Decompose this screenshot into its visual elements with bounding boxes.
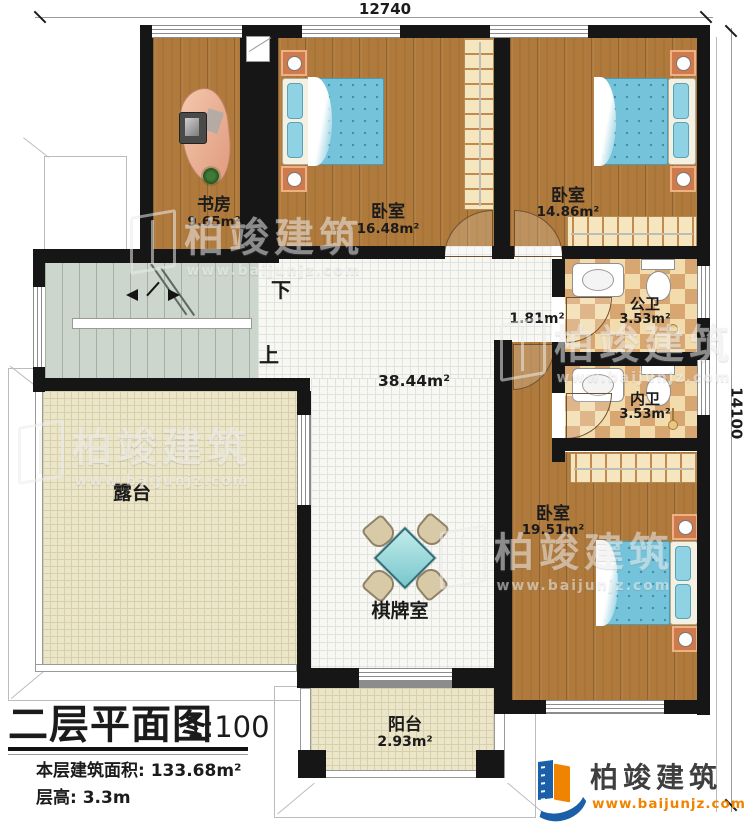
room-area-public-bath: 3.53m²	[612, 313, 678, 327]
wall-bedrooms-bottom	[278, 246, 445, 259]
study-door-leaf	[246, 36, 270, 62]
bedroom2-wardrobe	[567, 216, 697, 250]
bedroom2-window	[490, 25, 588, 38]
room-label-study: 书房	[174, 196, 254, 215]
room-label-public-bath: 公卫	[610, 296, 680, 313]
wall-chess-bottom	[297, 668, 359, 688]
dimension-right-value: 14100	[728, 383, 745, 443]
nightstand	[672, 626, 698, 652]
wall-bedrooms-bottom	[562, 246, 710, 259]
room-area-bedroom1: 16.48m²	[348, 222, 428, 237]
brand-logo: 柏竣建筑 www.baijunjz.com	[524, 755, 744, 817]
study-window	[152, 25, 242, 38]
wall-bedroom3-bottom	[494, 700, 546, 714]
terrace-railing-bottom	[35, 664, 297, 672]
bed-pillow	[287, 122, 303, 158]
balcony-pillar	[476, 750, 504, 778]
room-area-ensuite-bath: 3.53m²	[612, 408, 678, 422]
stairs-arrow-left	[126, 289, 138, 301]
nightstand	[672, 514, 698, 540]
stairs-down-label: 下	[268, 279, 294, 301]
chess-room-floor	[311, 378, 494, 668]
room-label-terrace: 露台	[94, 483, 170, 504]
plan-title: 二层平面图	[8, 703, 188, 747]
wall-chess-terrace	[297, 391, 311, 415]
wall-terrace-top	[33, 378, 310, 391]
bed-pillow	[675, 584, 691, 619]
room-area-study: 9.65m²	[174, 215, 254, 230]
nightstand	[670, 166, 696, 192]
hallway-small-floor	[494, 246, 552, 342]
plant-icon	[203, 168, 219, 184]
bed-pillow	[287, 83, 303, 119]
stairs-center-rail	[72, 318, 252, 329]
wall-door-pillar	[492, 246, 514, 259]
terrace-floor	[43, 391, 297, 664]
ensuite-bath-window	[697, 360, 710, 415]
balcony-pillar	[298, 750, 326, 778]
balcony-railing-bottom	[300, 770, 505, 778]
room-area-bedroom2: 14.86m²	[528, 205, 608, 220]
title-underline	[8, 747, 248, 751]
floor-plan-canvas: 书房 9.65m² 卧室 16.48m² 卧室 14.86m² 公卫 3.53m…	[0, 0, 750, 826]
hall-area-main: 38.44m²	[378, 373, 450, 390]
bedroom1-window	[302, 25, 400, 38]
wall-bedroom3-bottom	[664, 700, 710, 714]
wall-chess-bottom	[452, 668, 512, 688]
bedroom1-wardrobe	[464, 38, 494, 210]
stairs-up-label: 上	[256, 344, 282, 366]
bed-pillow	[675, 546, 691, 581]
bedroom3-wardrobe	[570, 453, 697, 483]
wall-chess-terrace	[297, 505, 311, 673]
terrace-sliding-door	[297, 415, 311, 505]
floor-area-text: 本层建筑面积: 133.68m²	[36, 762, 296, 781]
logo-brand-url: www.baijunjz.com	[592, 797, 744, 812]
room-label-bedroom2: 卧室	[528, 187, 608, 206]
eave-outline-topleft	[44, 156, 127, 252]
wall-bath-left	[552, 342, 565, 393]
balcony-sliding-door	[359, 668, 452, 688]
wall-bedroom1-bedroom2	[494, 25, 510, 253]
bed-pillow	[673, 83, 689, 119]
sink-icon	[572, 263, 624, 297]
stairs-arrow-right	[168, 289, 180, 301]
stairwell-window	[33, 287, 45, 367]
wall-bath-divider	[565, 352, 698, 366]
bed-pillow	[673, 122, 689, 158]
title-underline-thin	[8, 754, 248, 755]
wall-study-left	[140, 25, 153, 260]
room-label-balcony: 阳台	[369, 716, 441, 735]
wall-chess-bedroom3	[494, 340, 512, 712]
bedroom3-window	[546, 700, 664, 714]
terrace-railing-left	[35, 391, 43, 672]
eave-diagonal	[23, 137, 49, 157]
logo-building-icon	[524, 757, 586, 815]
nightstand	[670, 50, 696, 76]
nightstand	[281, 166, 307, 192]
room-label-ensuite-bath: 内卫	[610, 391, 680, 408]
room-area-bedroom3: 19.51m²	[512, 523, 594, 538]
room-label-chess: 棋牌室	[355, 601, 445, 622]
nightstand	[281, 50, 307, 76]
room-label-bedroom1: 卧室	[348, 203, 428, 222]
wall-bath-left	[552, 259, 565, 297]
room-label-bedroom3: 卧室	[515, 505, 591, 524]
computer-monitor-icon	[179, 112, 207, 144]
hall-area-small: 1.81m²	[506, 312, 568, 327]
floor-height-text: 层高: 3.3m	[36, 789, 236, 808]
public-bath-window	[697, 266, 710, 318]
wall-ensuite-bottom	[565, 438, 698, 451]
plan-scale: 1:100	[186, 712, 256, 744]
eave-line-right	[716, 37, 717, 812]
toilet-tank-icon	[641, 259, 675, 270]
logo-brand-name: 柏竣建筑	[590, 763, 744, 794]
wall-bath-left	[552, 438, 565, 462]
room-area-balcony: 2.93m²	[371, 735, 439, 750]
hallway-floor	[258, 246, 494, 378]
dimension-top-value: 12740	[345, 1, 425, 18]
